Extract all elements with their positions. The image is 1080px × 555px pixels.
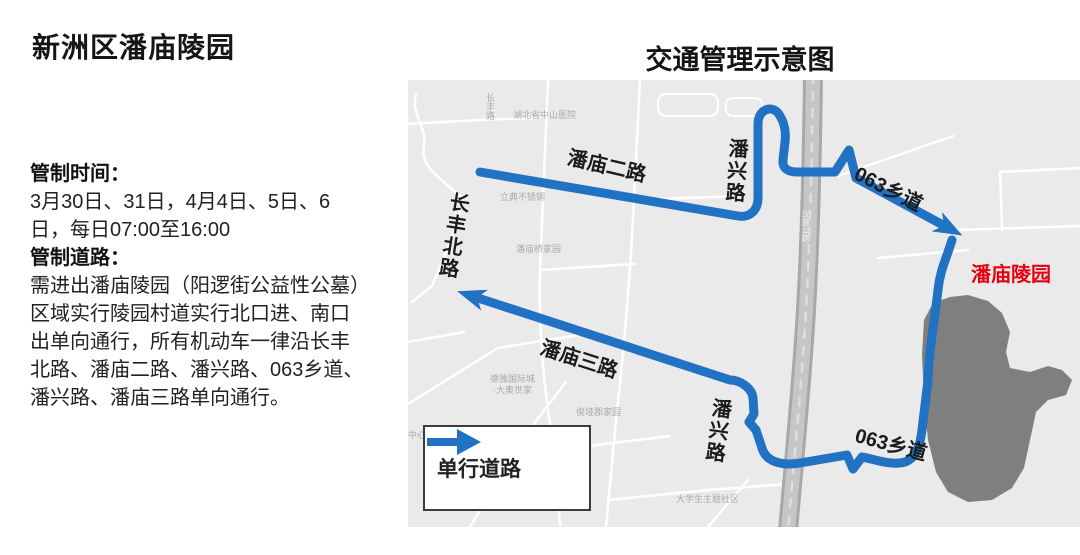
bg-label-student-community: 大学生主题社区 [676, 494, 739, 505]
page-title: 新洲区潘庙陵园 [32, 26, 235, 66]
one-way-route-entry [480, 109, 943, 225]
bg-label-junya: 俊垭郡家园 [576, 407, 621, 418]
control-roads-heading: 管制道路： [30, 244, 420, 272]
highway-name-label: 汉施公路 [800, 210, 811, 242]
bg-label-deya-line1: 德雅国际城 [490, 374, 535, 385]
legend: 单行道路 [423, 425, 591, 511]
map-title: 交通管理示意图 [575, 38, 905, 77]
control-time-heading: 管制时间： [30, 160, 420, 188]
legend-label: 单行道路 [437, 453, 521, 483]
page: 新洲区潘庙陵园 管制时间： 3月30日、31日，4月4日、5日、6 日，每日07… [0, 0, 1080, 555]
control-time-line-2: 日，每日07:00至16:00 [30, 216, 420, 244]
traffic-map: 湖北省中山医院 立典不锈钢 潘庙桥家园 德雅国际城 ·大奥世家 俊垭郡家园 大学… [408, 80, 1080, 527]
control-roads-line-1: 需进出潘庙陵园（阳逻街公益性公墓） [30, 272, 420, 300]
destination-label-panmiao-cemetery: 潘庙陵园 [971, 258, 1051, 287]
road-label-panxing-top: 潘兴路 [721, 137, 747, 204]
bg-label-steel-plant: 立典不锈钢 [500, 192, 545, 203]
control-roads-line-5: 潘兴路、潘庙三路单向通行。 [30, 384, 420, 412]
cemetery-hill-area [922, 295, 1072, 502]
control-roads-line-2: 区域实行陵园村道实行北口进、南口 [30, 300, 420, 328]
traffic-notice-text: 管制时间： 3月30日、31日，4月4日、5日、6 日，每日07:00至16:0… [30, 160, 420, 412]
bg-label-deya-line2: ·大奥世家 [490, 385, 535, 396]
one-way-arrow-icon [425, 427, 483, 457]
bg-label-hospital: 湖北省中山医院 [513, 110, 576, 121]
control-time-line-1: 3月30日、31日，4月4日、5日、6 [30, 188, 420, 216]
bg-label-small-road: 长丰路 [484, 93, 495, 120]
control-roads-line-3: 出单向通行，所有机动车一律沿长丰 [30, 328, 420, 356]
control-roads-line-4: 北路、潘庙二路、潘兴路、063乡道、 [30, 356, 420, 384]
bg-label-panmiao-bridge: 潘庙桥家园 [516, 244, 561, 255]
